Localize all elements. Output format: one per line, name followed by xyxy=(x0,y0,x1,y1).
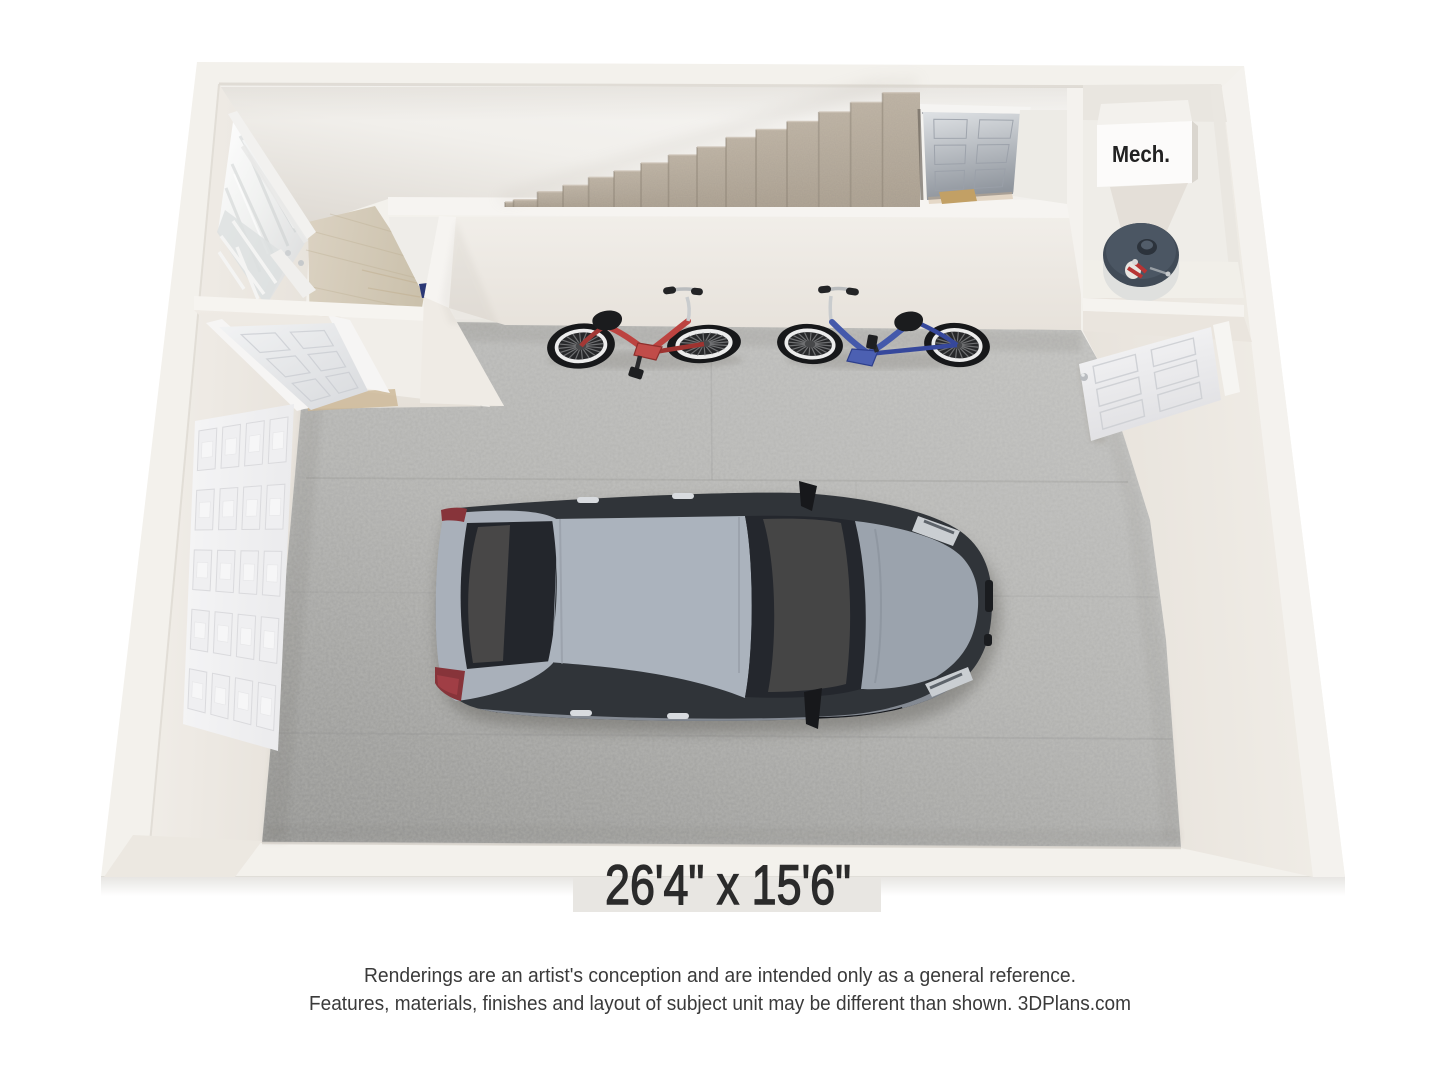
svg-text:26'4" x 15'6": 26'4" x 15'6" xyxy=(605,853,851,916)
svg-text:Features, materials, finishes: Features, materials, finishes and layout… xyxy=(309,993,1131,1015)
svg-text:Renderings are an artist's con: Renderings are an artist's conception an… xyxy=(364,965,1076,987)
svg-text:Mech.: Mech. xyxy=(1112,141,1170,167)
